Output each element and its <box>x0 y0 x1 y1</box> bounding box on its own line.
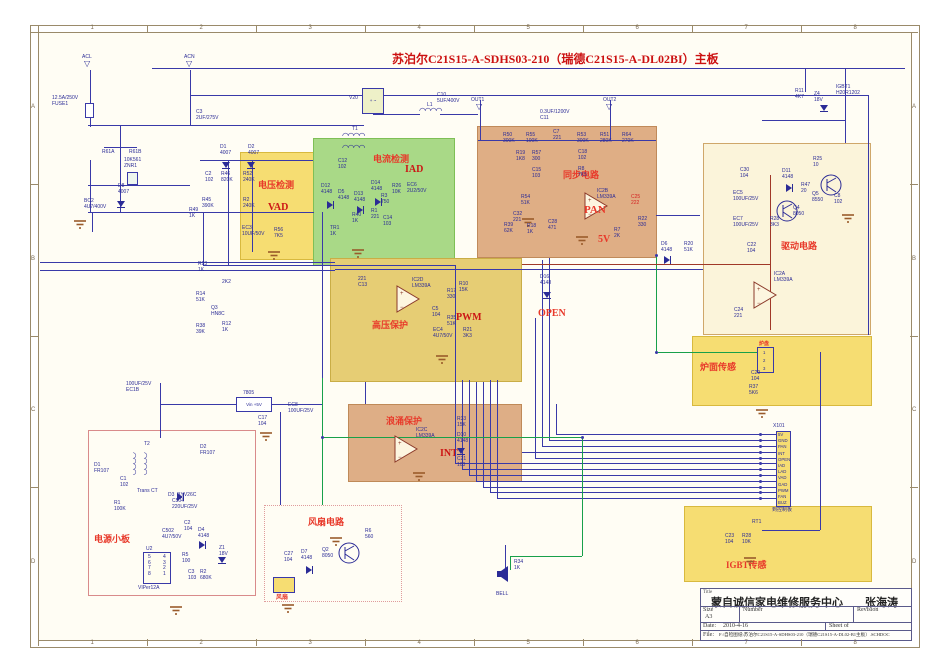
wire-horizontal <box>373 114 420 115</box>
wire-junction-dot <box>759 480 762 483</box>
component-label: R18 1K <box>527 224 536 235</box>
surge-protect-block-label: 浪涌保护 <box>386 414 422 427</box>
component-label: R14 51K <box>196 292 205 303</box>
date-label: Date: <box>703 623 716 629</box>
wire-horizontal <box>522 452 777 453</box>
wire-vertical <box>656 255 657 352</box>
diode-symbol <box>664 251 672 269</box>
coil-symbol: ◠◠◠◠ <box>342 133 364 139</box>
component-label: EC6 2U2/50V <box>407 183 426 194</box>
label-5v: 5V <box>598 234 610 245</box>
border-row-label: D <box>912 559 916 565</box>
wire-horizontal <box>152 68 905 69</box>
component-label: C30 104 <box>740 168 749 179</box>
hv-protect-block-sublabel: PWM <box>456 312 482 323</box>
border-row-label: C <box>912 407 916 413</box>
component-label: R22 330 <box>638 217 647 228</box>
connector-arrow-icon: ▽ <box>476 103 482 111</box>
component-label: C24 221 <box>734 308 743 319</box>
component-label: R7 2K <box>614 228 620 239</box>
component-label: D2 FR107 <box>200 445 215 456</box>
component-label: C8 102 <box>834 194 842 205</box>
connector-arrow-icon: ▽ <box>84 60 90 68</box>
label-open: OPEN <box>538 308 566 319</box>
component-label: D1 4007 <box>220 145 231 156</box>
diode-symbol <box>306 561 314 579</box>
wire-vertical <box>92 212 93 232</box>
wire-horizontal <box>762 530 820 531</box>
wire-horizontal <box>556 434 777 435</box>
border-column-label: 7 <box>745 640 748 646</box>
component-label: OUT2 <box>603 98 616 104</box>
wire-vertical <box>820 352 821 508</box>
border-tick <box>910 336 918 337</box>
size-value: A3 <box>705 614 712 620</box>
wire-junction-dot <box>655 254 658 257</box>
svg-text:+: + <box>757 287 761 293</box>
component-label: Q4 8050 <box>793 206 804 217</box>
component-label: U2 <box>146 547 152 553</box>
svg-text:+: + <box>398 441 402 447</box>
component-label: R47 20 <box>801 183 810 194</box>
wire-vertical <box>556 404 557 434</box>
component-label: RT1 <box>752 520 761 526</box>
border-row-label: A <box>31 104 35 110</box>
wire-vertical <box>160 383 161 438</box>
component-label: C27 104 <box>284 552 293 563</box>
coil-symbol: ◠◠◠◠ <box>419 108 441 114</box>
diode-symbol <box>786 179 794 197</box>
wire-junction-dot <box>581 436 584 439</box>
wire-horizontal <box>335 269 703 270</box>
component-label: BELL <box>496 592 508 598</box>
border-tick <box>256 639 257 646</box>
diode-symbol <box>213 557 231 565</box>
component-label: C21 103 <box>457 457 466 468</box>
component-label: D14 4148 <box>371 181 382 192</box>
border-tick <box>365 639 366 646</box>
wire-horizontal <box>762 120 845 121</box>
wire-horizontal <box>535 458 777 459</box>
wire-horizontal <box>462 469 777 470</box>
component-label: IC2C LM339A <box>416 428 435 439</box>
border-column-label: 3 <box>309 25 312 31</box>
component-label: R17 330 <box>447 289 456 300</box>
psu-board-block <box>88 430 256 596</box>
wire-vertical <box>820 508 821 530</box>
wire-vertical <box>542 260 543 446</box>
title-block: Title 蒙自诚信家电维修服务中心 张海涛 Size A3 Number Re… <box>700 588 912 641</box>
component-label: EC5 100UF/25V <box>733 191 758 202</box>
component-label: R26 10K <box>392 184 401 195</box>
component-label: 4 3 2 1 <box>163 555 166 577</box>
component-label: EC4 4U7/50V <box>433 328 452 339</box>
component-label: R35 51K <box>447 316 456 327</box>
ground-symbol <box>576 232 588 250</box>
border-tick <box>801 25 802 32</box>
component-label: Trans CT <box>137 489 158 495</box>
border-column-label: 5 <box>527 25 530 31</box>
component-label: C10 5UF/400V <box>437 93 460 104</box>
wire-horizontal <box>160 404 236 405</box>
component-label: R51 280K <box>600 133 612 144</box>
wire-vertical <box>280 412 281 505</box>
component-label: VIPer12A <box>138 586 159 592</box>
component-label: IC2A LM339A <box>774 272 793 283</box>
component-label: R8 7K5 <box>578 167 587 178</box>
wire-horizontal <box>510 556 582 557</box>
schematic-sheet: 苏泊尔C21S15-A-SDHS03-210（瑞德C21S15-A-DL02BI… <box>0 0 950 672</box>
component-label: C2 102 <box>205 172 213 183</box>
wire-vertical <box>322 212 323 378</box>
component-label: R56 7K5 <box>274 228 283 239</box>
component-label: D2 4007 <box>248 145 259 156</box>
wire-vertical <box>203 212 204 265</box>
schematic-page: 苏泊尔C21S15-A-SDHS03-210（瑞德C21S15-A-DL02BI… <box>0 0 950 672</box>
border-column-label: 1 <box>91 640 94 646</box>
wire-junction-dot <box>759 474 762 477</box>
fan-connector <box>273 577 295 593</box>
wire-vertical <box>510 556 511 570</box>
component-label: R25 10 <box>813 157 822 168</box>
surge-protect-block <box>348 404 522 482</box>
wire-junction-dot <box>759 457 762 460</box>
component-label: C5 104 <box>432 307 440 318</box>
component-label: R28 10K <box>742 534 751 545</box>
component-label: T2 <box>144 442 150 448</box>
component-label: R40 1K <box>352 213 361 224</box>
regulator-7805-box: Vin +5V <box>236 397 272 412</box>
component-label: R12 1K <box>222 322 231 333</box>
component-label: 100UF/25V EC1B <box>126 382 151 393</box>
wire-horizontal <box>88 212 314 213</box>
component-label: R34 1K <box>514 560 523 571</box>
component-label: C1 102 <box>120 477 128 488</box>
border-tick <box>30 32 38 33</box>
wire-horizontal <box>656 215 700 216</box>
component-label: C14 103 <box>383 216 392 227</box>
border-column-label: 6 <box>636 640 639 646</box>
component-label: R3 750 <box>381 194 389 205</box>
border-column-label: 1 <box>91 25 94 31</box>
current-detect-block-label: 电流检测 <box>373 152 409 165</box>
border-row-label: A <box>912 104 916 110</box>
svg-text:−: − <box>757 301 761 307</box>
border-tick <box>583 25 584 32</box>
component-label: R1 221 <box>371 209 379 220</box>
ground-symbol <box>170 602 182 620</box>
component-label: TR1 1K <box>330 226 339 237</box>
component-label: EC7 100UF/25V <box>733 217 758 228</box>
component-label: R61B <box>129 150 142 156</box>
wire-junction-dot <box>759 445 762 448</box>
ground-symbol <box>260 428 272 446</box>
diode-symbol <box>815 105 833 113</box>
svg-text:−: − <box>398 455 402 461</box>
component-label: BC2 4U7/400V <box>84 199 106 210</box>
diode-symbol <box>452 448 470 456</box>
border-tick <box>474 639 475 646</box>
opamp-symbol: +− <box>753 281 777 314</box>
border-column-label: 6 <box>636 25 639 31</box>
wire-junction-dot <box>759 497 762 500</box>
component-label: 12.5A/250V FUSE1 <box>52 96 78 107</box>
component-label: L1 <box>427 103 433 109</box>
border-tick <box>801 639 802 646</box>
coil-symbol: ◠◠◠◠ <box>141 452 147 474</box>
component-label: C23 104 <box>725 534 734 545</box>
component-label: C2 104 <box>184 521 192 532</box>
component-label: R19 1K8 <box>516 151 525 162</box>
component-label: R61A <box>102 150 115 156</box>
revision-label: Revision <box>857 607 878 613</box>
component-label: D16 4148 <box>540 275 551 286</box>
wire-vertical <box>190 70 191 125</box>
border-column-label: 2 <box>200 640 203 646</box>
fuse-box <box>85 103 94 118</box>
component-label: R39 62K <box>504 223 513 234</box>
coil-symbol: ◠◠◠◠ <box>130 452 136 474</box>
border-column-label: 8 <box>854 640 857 646</box>
component-label: C502 4U7/50V <box>162 529 181 540</box>
wire-horizontal <box>469 475 777 476</box>
label-pan: PAN <box>584 204 606 216</box>
border-tick <box>38 639 39 646</box>
wire-horizontal <box>455 463 777 464</box>
component-label: D7 4148 <box>301 550 312 561</box>
number-label: Number <box>743 607 763 613</box>
component-label: 5 6 7 8 <box>148 555 151 577</box>
wire-vertical <box>483 382 484 487</box>
component-label: C15 103 <box>532 168 541 179</box>
fan-circuit-block-label: 风扇电路 <box>308 515 344 528</box>
component-label: C12 102 <box>338 159 347 170</box>
label-风扇: 风扇 <box>276 592 288 601</box>
psu-board-block-label: 电源小板 <box>94 532 130 545</box>
ground-symbol <box>268 247 280 265</box>
wire-junction-dot <box>321 436 324 439</box>
wire-junction-dot <box>759 491 762 494</box>
border-tick <box>365 25 366 32</box>
component-label: D5 4148 <box>338 190 349 201</box>
component-label: C28 471 <box>548 220 557 231</box>
speaker-icon <box>496 566 510 587</box>
wire-horizontal <box>522 264 770 265</box>
wire-vertical <box>120 125 121 212</box>
component-label: R33 15K <box>457 417 466 428</box>
svg-text:+: + <box>400 291 404 297</box>
component-label: Q2 8050 <box>322 548 333 559</box>
component-label: C504 220UF/25V <box>172 499 197 510</box>
wire-vertical <box>476 382 477 481</box>
wire-horizontal <box>322 437 582 438</box>
component-label: C22 104 <box>747 243 756 254</box>
border-column-label: 2 <box>200 25 203 31</box>
diode-symbol <box>242 162 260 170</box>
drive-circuit-block-label: 驱动电路 <box>781 239 817 252</box>
component-label: 7805 <box>243 391 254 397</box>
wire-horizontal <box>483 487 777 488</box>
wire-horizontal <box>200 160 313 161</box>
component-label: R2 680K <box>200 570 212 581</box>
component-label: R37 5K6 <box>749 385 758 396</box>
wire-vertical <box>365 382 366 404</box>
wire-horizontal <box>476 481 777 482</box>
component-label: R21 3K3 <box>463 328 472 339</box>
component-label: D1 FR107 <box>94 463 109 474</box>
wire-horizontal <box>88 125 364 126</box>
component-label: R50 300K <box>503 133 515 144</box>
component-label: T1 <box>352 127 358 133</box>
component-label: R54 51K <box>521 195 530 206</box>
wire-horizontal <box>40 270 335 271</box>
border-row-label: C <box>31 407 35 413</box>
component-label: 2K2 <box>222 280 231 286</box>
component-label: C3 2UF/275V <box>196 110 219 121</box>
ground-symbol <box>74 216 86 234</box>
component-label: D8 4007 <box>118 184 129 195</box>
wire-horizontal <box>40 262 335 263</box>
component-label: ACL <box>82 55 92 61</box>
connector-arrow-icon: ▽ <box>606 103 612 111</box>
component-label: R5 100 <box>182 553 190 564</box>
border-column-label: 7 <box>745 25 748 31</box>
wire-junction-dot <box>759 462 762 465</box>
component-label: IGBT1 H20R1202 <box>836 85 860 96</box>
component-label: D12 4148 <box>321 184 332 195</box>
border-tick <box>692 25 693 32</box>
border-column-label: 8 <box>854 25 857 31</box>
component-label: R23 1K <box>198 262 207 273</box>
ground-symbol <box>436 351 448 369</box>
border-tick <box>474 25 475 32</box>
label-炉盘: 炉盘 <box>759 340 769 347</box>
wire-horizontal <box>203 265 455 266</box>
wire-junction-dot <box>759 468 762 471</box>
component-label: C32 221 <box>513 212 522 223</box>
component-label: OUT1 <box>471 98 484 104</box>
component-label: R10 15K <box>459 282 468 293</box>
opamp-symbol: +− <box>396 285 420 318</box>
component-label: 221 C13 <box>358 277 367 288</box>
wire-junction-dot <box>759 451 762 454</box>
border-tick <box>256 25 257 32</box>
border-tick <box>910 487 918 488</box>
pan-connector-pin-labels: 1 2 3 <box>763 349 765 373</box>
border-tick <box>910 184 918 185</box>
sheet-label: Sheet of <box>829 623 849 629</box>
component-label: IC2B LM339A <box>597 189 616 200</box>
wire-horizontal <box>88 185 190 186</box>
component-label: R1 100K <box>114 501 126 512</box>
component-label: R57 300 <box>532 151 541 162</box>
component-label: C29 104 <box>751 371 760 382</box>
border-tick <box>30 184 38 185</box>
component-label: D11 4148 <box>782 169 793 180</box>
border-tick <box>38 25 39 32</box>
component-label: C3 103 <box>188 570 196 581</box>
component-label: 到控制板 <box>772 508 792 514</box>
ground-symbol <box>352 245 364 263</box>
component-label: R2 240K <box>243 198 255 209</box>
current-detect-block-sublabel: IAD <box>405 164 423 175</box>
component-label: R55 100K <box>526 133 538 144</box>
diode-symbol <box>538 292 556 300</box>
wire-horizontal <box>490 492 777 493</box>
diode-symbol <box>217 162 235 170</box>
x101-pin-labels: 5V GND PAN INT OPEN IAD LAD VAD GAD PWM … <box>778 432 790 506</box>
border-row-label: B <box>31 256 35 262</box>
diode-symbol <box>327 196 335 214</box>
voltage-detect-block-label: 电压检测 <box>258 178 294 191</box>
component-label: R52 240K <box>243 172 255 183</box>
border-column-label: 4 <box>418 640 421 646</box>
ground-symbol <box>282 600 294 618</box>
component-label: 10K561 ZNR1 <box>124 158 141 169</box>
component-label: R49 1K <box>189 208 198 219</box>
pan-sensor-block-label: 炉面传感 <box>700 360 736 373</box>
component-label: D13 4148 <box>354 192 365 203</box>
wire-junction-dot <box>759 433 762 436</box>
wire-junction-dot <box>759 486 762 489</box>
component-label: R46 820K <box>221 172 233 183</box>
wire-horizontal <box>440 114 478 115</box>
border-tick <box>30 336 38 337</box>
component-label: R20 51K <box>684 242 693 253</box>
ground-symbol <box>842 210 854 228</box>
date-value: 2010-4-16 <box>723 623 748 629</box>
component-label: D4 4148 <box>198 528 209 539</box>
border-tick <box>692 639 693 646</box>
file-label: File: <box>703 632 714 638</box>
component-label: R6 560 <box>365 529 373 540</box>
wire-vertical <box>497 380 498 498</box>
ground-symbol <box>756 405 768 423</box>
component-label: EC8 100UF/25V <box>288 403 313 414</box>
border-row-label: D <box>31 559 35 565</box>
component-label: C25 222 <box>631 195 640 206</box>
component-label: Z1 18V <box>219 546 228 557</box>
wire-junction-dot <box>655 351 658 354</box>
component-label: 0.3UF/1200V C11 <box>540 110 569 121</box>
wire-horizontal <box>656 352 758 353</box>
component-label: EC3 10UF/50V <box>242 226 265 237</box>
border-tick <box>147 25 148 32</box>
component-label: R45 390K <box>202 198 214 209</box>
component-label: D6 4148 <box>661 242 672 253</box>
file-value: F:\自检图纸\苏泊尔C21S15-A-SDHS03-210（瑞德C21S15-… <box>719 632 890 638</box>
wire-vertical <box>469 380 470 475</box>
border-column-label: 3 <box>309 640 312 646</box>
border-tick <box>147 639 148 646</box>
wire-horizontal <box>549 440 777 441</box>
border-tick <box>910 32 918 33</box>
component-label: C17 104 <box>258 416 267 427</box>
component-label: R11 4K7 <box>795 89 804 100</box>
ground-symbol <box>744 553 756 571</box>
border-column-label: 5 <box>527 640 530 646</box>
igbt-sensor-block <box>684 506 872 582</box>
component-label: C7 221 <box>553 130 561 141</box>
sync-circuit-block <box>477 126 657 258</box>
hv-protect-block-label: 高压保护 <box>372 318 408 331</box>
bridge-rectifier-box: + ~ <box>362 88 384 114</box>
component-label: X101 <box>773 424 785 430</box>
component-label: V20 <box>349 96 358 102</box>
component-label: ACN <box>184 55 195 61</box>
component-label: R28 3K3 <box>770 217 779 228</box>
wire-horizontal <box>542 446 777 447</box>
